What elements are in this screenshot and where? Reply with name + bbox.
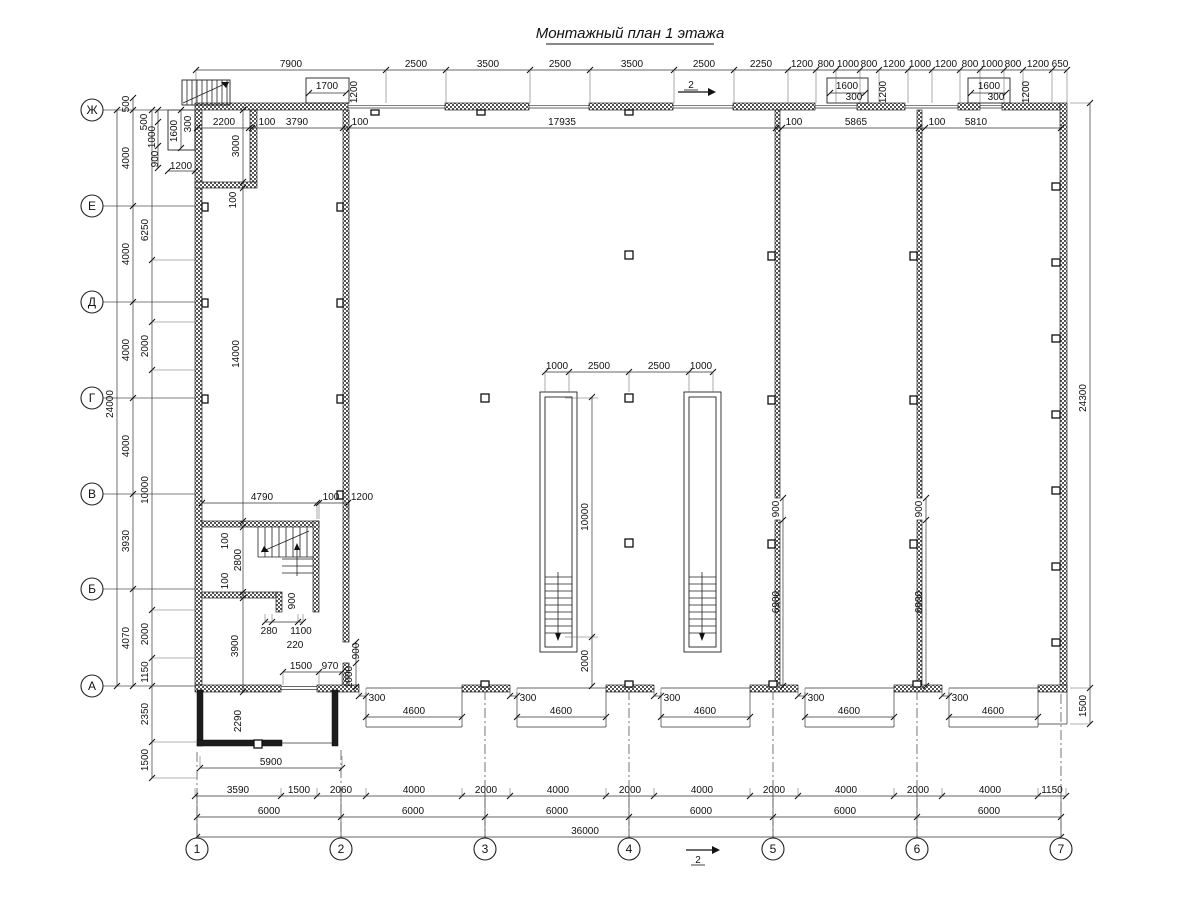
- dim-chain: 1500970: [280, 661, 345, 685]
- dim-label: 1200: [791, 59, 814, 70]
- dim-label: 1200: [170, 161, 193, 172]
- dim-label: 2000: [580, 649, 591, 672]
- dim-label: 3900: [230, 634, 241, 657]
- axis-col-6: 6: [906, 838, 928, 860]
- dim-label: 24000: [105, 390, 116, 418]
- dim-label: 1100: [290, 626, 312, 637]
- axis-label: Е: [88, 199, 96, 213]
- dim-label: 100: [929, 117, 946, 128]
- corner-room-wall: [250, 110, 257, 182]
- dim-label: 17935: [548, 117, 576, 128]
- dim-label: 800: [861, 59, 878, 70]
- dim-label: 3500: [477, 59, 500, 70]
- axis-label: Б: [88, 582, 96, 596]
- dim-label: 4600: [694, 706, 717, 717]
- dim-label: 1000: [909, 59, 932, 70]
- dim-chain: 100002000: [580, 394, 595, 689]
- dim-label: 280: [261, 626, 278, 637]
- axis-label: 7: [1058, 842, 1065, 856]
- dim-chain: 1000250025001000: [542, 361, 716, 392]
- dim-label: 1200: [878, 80, 889, 103]
- axis-label: 6: [914, 842, 921, 856]
- dim-label: 100: [259, 117, 276, 128]
- dim-label: 6000: [834, 806, 857, 817]
- dim-label: 100: [228, 191, 239, 208]
- dim-label: 4000: [547, 785, 570, 796]
- dim-label: 100: [786, 117, 803, 128]
- dim-label: 2000: [619, 785, 642, 796]
- dim-label: 5810: [965, 117, 988, 128]
- dim-label: 1200: [349, 80, 360, 103]
- dim-label: 6000: [978, 806, 1001, 817]
- floor-plan-svg: Монтажный план 1 этажа: [0, 0, 1200, 900]
- dim-label: 2250: [750, 59, 773, 70]
- dim-label: 900: [351, 642, 362, 659]
- dim-label: 100: [323, 492, 340, 503]
- dim-label: 2500: [549, 59, 572, 70]
- dim-label: 6000: [402, 806, 425, 817]
- dim-label: 3590: [227, 785, 250, 796]
- pits: [540, 392, 721, 652]
- dim-label: 4600: [838, 706, 861, 717]
- free-labels: 1700120016003001200160030012005001000160…: [139, 80, 1032, 732]
- axis-label: Г: [89, 391, 96, 405]
- dim-label: 6250: [140, 218, 151, 241]
- axis-col-5: 5: [762, 838, 784, 860]
- pit-1-arrow: [555, 633, 561, 641]
- dim-label: 7900: [280, 59, 303, 70]
- dim-label: 2060: [330, 785, 353, 796]
- dim-label: 900: [287, 592, 298, 609]
- axis-row-Е: Е: [81, 195, 103, 217]
- page-title: Монтажный план 1 этажа: [536, 25, 725, 42]
- dim-label: 1600: [169, 119, 180, 142]
- dim-chain: 220010037901001793510058651005810: [194, 117, 1064, 131]
- dim-label: 2350: [140, 702, 151, 725]
- dim-label: 5900: [260, 757, 283, 768]
- dim-label: 1150: [140, 661, 151, 683]
- axis-row-В: В: [81, 483, 103, 505]
- dim-label: 10000: [580, 503, 591, 531]
- dim-label: 1200: [1021, 80, 1032, 103]
- dim-label: 6900: [914, 590, 925, 613]
- dim-label: 6000: [690, 806, 713, 817]
- dim-label: 4000: [835, 785, 858, 796]
- dim-label: 1000: [147, 125, 158, 148]
- dim-label: 300: [846, 92, 863, 103]
- dim-chain: 500400040004000400039304070: [121, 95, 136, 689]
- section-mark: 2: [686, 846, 720, 866]
- axis-col-7: 7: [1050, 838, 1072, 860]
- dim-label: 4000: [403, 785, 426, 796]
- dim-label: 3790: [286, 117, 309, 128]
- axis-col-2: 2: [330, 838, 352, 860]
- dim-label: 4070: [121, 626, 132, 649]
- dim-label: 2000: [763, 785, 786, 796]
- pit-2-arrow: [699, 633, 705, 641]
- wall-east: [1060, 103, 1067, 692]
- dim-chain: 3590150020604000200040002000400020004000…: [192, 785, 1069, 799]
- stairwell-wall: [202, 521, 319, 527]
- dim-chain: 4600: [802, 706, 897, 720]
- dim-label: 3500: [621, 59, 644, 70]
- dim-label: 650: [1052, 59, 1069, 70]
- dim-label: 4000: [121, 338, 132, 361]
- dim-label: 2200: [213, 117, 236, 128]
- dim-label: 300: [808, 693, 825, 704]
- axis-col-3: 3: [474, 838, 496, 860]
- dim-label: 1000: [981, 59, 1004, 70]
- dim-label: 6000: [258, 806, 281, 817]
- dim-chain: 4600: [946, 706, 1041, 720]
- dim-label: 900: [914, 500, 925, 517]
- dim-label: 24300: [1078, 384, 1089, 412]
- exterior-stair: [182, 80, 230, 105]
- dim-label: 900: [771, 500, 782, 517]
- dim-label: 4790: [251, 492, 274, 503]
- dim-label: 1500: [288, 785, 311, 796]
- dim-label: 3930: [121, 529, 132, 552]
- dim-label: 2500: [693, 59, 716, 70]
- dim-label: 1200: [1027, 59, 1050, 70]
- axis-col-1: 1: [186, 838, 208, 860]
- dim-label: 2500: [648, 361, 671, 372]
- dim-label: 4000: [121, 242, 132, 265]
- dim-label: 1000: [837, 59, 860, 70]
- axis-row-Ж: Ж: [81, 99, 103, 121]
- partition-1: [775, 110, 780, 498]
- axis-label: Д: [88, 295, 96, 309]
- axis-label: А: [88, 679, 96, 693]
- dim-label: 2000: [907, 785, 930, 796]
- dim-label: 220: [287, 640, 304, 651]
- dim-label: 2800: [233, 548, 244, 571]
- dim-label: 2000: [140, 334, 151, 357]
- axis-row-Б: Б: [81, 578, 103, 600]
- dim-label: 1600: [836, 81, 859, 92]
- dim-label: 1500: [1078, 694, 1089, 717]
- dim-label: 800: [1005, 59, 1022, 70]
- dim-label: 300: [988, 92, 1005, 103]
- dim-label: 100: [220, 532, 231, 549]
- axis-row-Г: Г: [81, 387, 103, 409]
- pit-2: [684, 392, 721, 652]
- partition-2: [917, 110, 922, 498]
- dim-label: 4000: [979, 785, 1002, 796]
- axis-label: В: [88, 487, 96, 501]
- dim-chain: 62502000100002000115023501500: [140, 107, 196, 781]
- dim-label: 1000: [546, 361, 569, 372]
- dim-chain: 5900: [197, 756, 345, 771]
- dim-label: 1000: [690, 361, 713, 372]
- axis-row-А: А: [81, 675, 103, 697]
- dim-label: 2500: [588, 361, 611, 372]
- columns: [202, 110, 1060, 748]
- axis-label: 5: [770, 842, 777, 856]
- dim-label: 300: [183, 115, 194, 132]
- dim-label: 5865: [845, 117, 868, 128]
- dim-label: 4600: [550, 706, 573, 717]
- dim-label: 800: [818, 59, 835, 70]
- dim-label: 1200: [883, 59, 906, 70]
- axis-row-Д: Д: [81, 291, 103, 313]
- pit-1-steps: [545, 572, 572, 636]
- axis-label: Ж: [86, 103, 97, 117]
- dim-label: 1500: [290, 661, 313, 672]
- dim-label: 1600: [978, 81, 1001, 92]
- section-label: 2: [695, 855, 701, 866]
- dim-chain: 4600: [514, 706, 609, 720]
- dim-label: 6900: [771, 590, 782, 613]
- interior-wall: [343, 110, 349, 642]
- dim-label: 3000: [231, 134, 242, 157]
- dim-label: 4000: [691, 785, 714, 796]
- dim-label: 2000: [475, 785, 498, 796]
- section-label: 2: [688, 80, 694, 91]
- interior-stair: [258, 527, 313, 576]
- dim-label: 4600: [982, 706, 1005, 717]
- axis-label: 1: [194, 842, 201, 856]
- wall-west: [195, 110, 202, 685]
- dim-label: 36000: [571, 826, 599, 837]
- dim-label: 10000: [140, 476, 151, 504]
- dim-label: 4000: [121, 146, 132, 169]
- dim-label: 100: [352, 117, 369, 128]
- axis-label: 2: [338, 842, 345, 856]
- wall-south: [195, 685, 281, 692]
- dim-label: 1150: [1041, 785, 1063, 796]
- section-mark: 2: [678, 80, 716, 96]
- dim-label: 2500: [405, 59, 428, 70]
- dim-label: 300: [952, 693, 969, 704]
- pit-1: [540, 392, 577, 652]
- dim-chain: 4600: [363, 706, 465, 720]
- dim-label: 1200: [935, 59, 958, 70]
- drawing-sheet: Монтажный план 1 этажа: [0, 0, 1200, 900]
- axis-label: 4: [626, 842, 633, 856]
- dim-label: 1200: [351, 492, 374, 503]
- dim-label: 1700: [316, 81, 339, 92]
- dim-label: 500: [121, 95, 132, 112]
- dim-label: 4600: [403, 706, 426, 717]
- pit-2-steps: [689, 572, 716, 636]
- dim-chain: 4600: [658, 706, 753, 720]
- axis-label: 3: [482, 842, 489, 856]
- dim-label: 800: [962, 59, 979, 70]
- axis-col-4: 4: [618, 838, 640, 860]
- dim-label: 1000: [344, 665, 355, 688]
- dock: [197, 690, 338, 746]
- dim-label: 900: [150, 150, 161, 167]
- dim-chain: 243001500: [1070, 100, 1093, 727]
- dim-label: 6000: [546, 806, 569, 817]
- dim-chain: [262, 614, 306, 625]
- dim-label: 300: [520, 693, 537, 704]
- dim-label: 300: [664, 693, 681, 704]
- dim-label: 2000: [140, 622, 151, 645]
- dim-label: 300: [369, 693, 386, 704]
- dim-label: 4000: [121, 434, 132, 457]
- dim-label: 2290: [233, 709, 244, 732]
- dim-label: 100: [220, 572, 231, 589]
- dim-label: 1500: [140, 748, 151, 771]
- dim-label: 14000: [231, 340, 242, 368]
- dim-label: 970: [322, 661, 339, 672]
